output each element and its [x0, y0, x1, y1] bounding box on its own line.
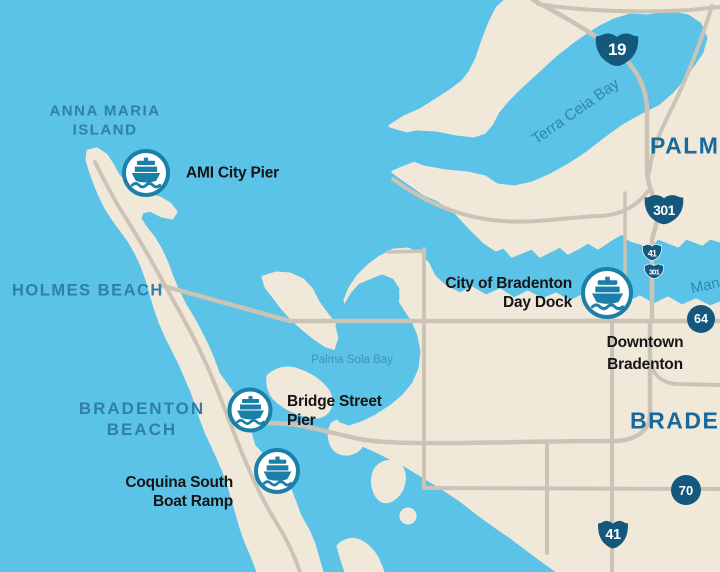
shield-us-301-small: 301: [644, 263, 664, 280]
label-city-of-bradenton-day-dock: City of Bradenton Day Dock: [445, 274, 572, 312]
label-anna-maria-line2: ISLAND: [49, 121, 160, 140]
label-anna-maria-island: ANNA MARIA ISLAND: [49, 102, 160, 140]
label-bridge-street-line2: Pier: [287, 411, 382, 430]
label-holmes-beach: HOLMES BEACH: [12, 281, 164, 302]
boat-icon: [261, 455, 294, 488]
marker-coquina-south-boat-ramp[interactable]: [254, 448, 300, 494]
label-bradenton-city: BRADENTON: [630, 408, 720, 435]
boat-icon: [589, 275, 626, 312]
pond-water: [386, 284, 398, 308]
label-coquina-line1: Coquina South: [125, 473, 233, 492]
label-bridge-street-pier: Bridge Street Pier: [287, 392, 382, 430]
boat-icon: [234, 394, 266, 426]
boat-icon: [129, 156, 163, 190]
shield-us-19: 19: [595, 30, 639, 68]
road-west-stub: [388, 251, 424, 252]
label-bridge-street-line1: Bridge Street: [287, 392, 382, 411]
label-day-dock-line2: Day Dock: [445, 293, 572, 312]
shield-sr-64: 64: [687, 305, 715, 333]
shield-us-41: 41: [598, 518, 629, 550]
shield-us-41-number: 41: [598, 519, 629, 551]
label-coquina-line2: Boat Ramp: [125, 492, 233, 511]
marker-city-of-bradenton-day-dock[interactable]: [581, 267, 633, 319]
shield-us-301-number: 301: [644, 193, 684, 227]
shield-us-19-number: 19: [595, 31, 639, 69]
label-palma-sola-bay: Palma Sola Bay: [311, 354, 393, 366]
shield-us-301: 301: [644, 192, 684, 226]
map-canvas: ANNA MARIA ISLAND HOLMES BEACH BRADENTON…: [0, 0, 720, 572]
land-mangrove-islet-4: [401, 509, 415, 523]
label-bradenton-beach-line2: BEACH: [79, 419, 205, 440]
shield-us-41-small: 41: [642, 243, 662, 262]
label-bradenton-beach-line1: BRADENTON: [79, 398, 205, 419]
marker-bridge-street-pier[interactable]: [228, 388, 273, 433]
label-ami-city-pier: AMI City Pier: [186, 164, 279, 183]
shield-sr-70: 70: [671, 475, 701, 505]
label-palmetto: PALMETTO: [650, 133, 720, 160]
shield-us-41-small-number: 41: [642, 244, 662, 263]
label-downtown-line2: Bradenton: [607, 354, 684, 376]
shield-us-301-small-number: 301: [644, 264, 664, 281]
label-coquina-south-boat-ramp: Coquina South Boat Ramp: [125, 473, 233, 511]
label-day-dock-line1: City of Bradenton: [445, 274, 572, 293]
marker-ami-city-pier[interactable]: [122, 149, 170, 197]
label-downtown-bradenton: Downtown Bradenton: [607, 332, 684, 376]
label-anna-maria-line1: ANNA MARIA: [49, 102, 160, 121]
label-downtown-line1: Downtown: [607, 332, 684, 354]
label-bradenton-beach: BRADENTON BEACH: [79, 398, 205, 441]
